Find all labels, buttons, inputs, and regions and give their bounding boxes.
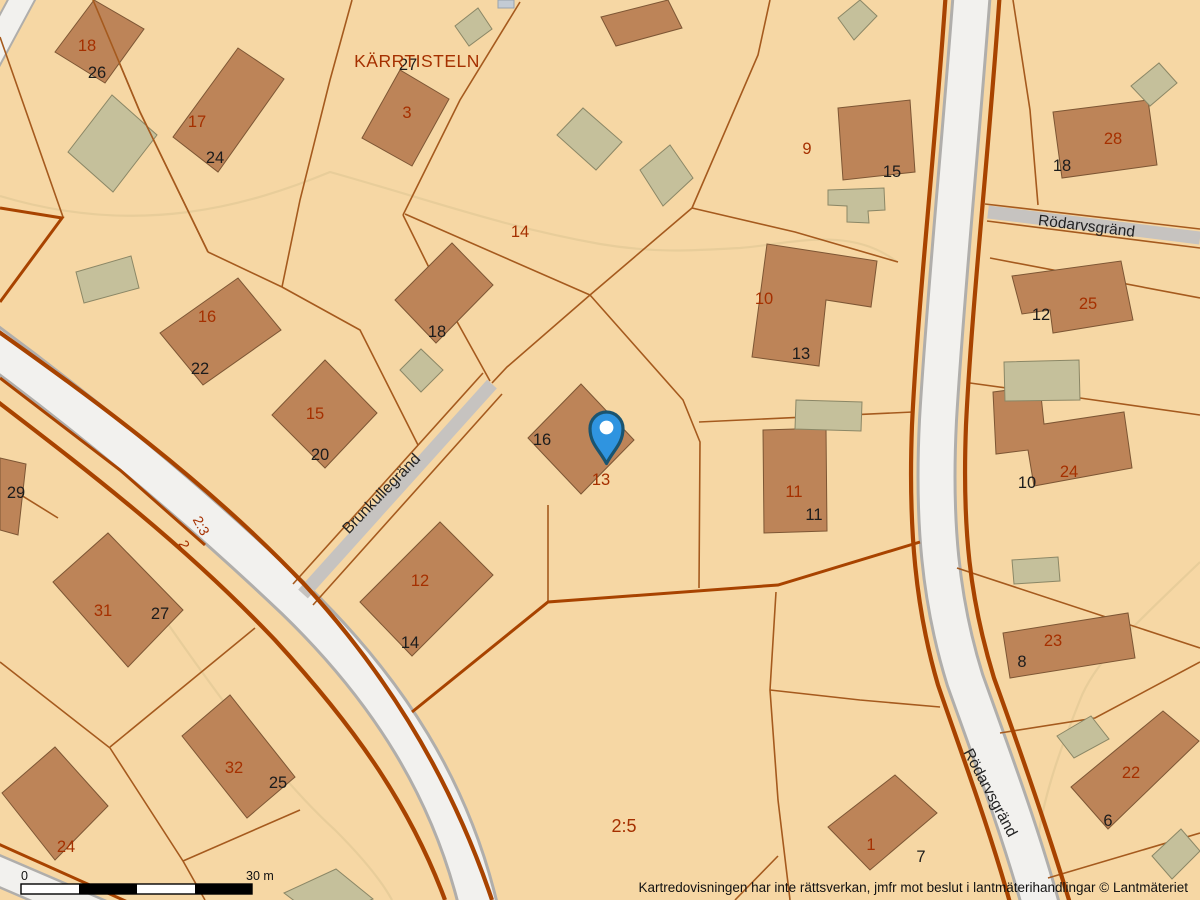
scale-start-label: 0 [21,869,28,883]
parcel-number-label: 9 [802,140,811,158]
copyright-text: Kartredovisningen har inte rättsverkan, … [639,880,1189,895]
parcel-number-label: 31 [94,602,112,620]
scale-bar-segment [195,884,252,894]
address-number-label: 18 [1053,157,1071,175]
scale-end-label: 30 m [246,869,274,883]
address-number-label: 24 [206,149,224,167]
address-number-label: 18 [428,323,446,341]
parcel-number-label: 15 [306,405,324,423]
parcel-number-label: 13 [592,471,610,489]
address-number-label: 11 [805,506,822,524]
address-number-label: 10 [1018,474,1036,492]
address-number-label: 8 [1017,653,1026,671]
shed-footprint [795,400,862,431]
address-number-label: 26 [88,64,106,82]
parcel-number-label: 23 [1044,632,1062,650]
address-number-label: 12 [1032,306,1050,324]
parcel-number-label: 22 [1122,764,1140,782]
pin-center-dot [600,421,614,435]
address-number-label: 7 [916,848,925,866]
parcel-number-label: 12 [411,572,429,590]
parcel-number-label: 1 [866,836,875,854]
parcel-number-label: 3 [402,104,411,122]
address-number-label: 22 [191,360,209,378]
parcel-number-label: 10 [755,290,773,308]
parcel-number-label: 18 [78,37,96,55]
parcel-number-label: 2:5 [611,816,636,836]
address-number-label: 20 [311,446,329,464]
address-number-label: 16 [533,431,551,449]
address-number-label: 14 [401,634,419,652]
scale-bar-segment [137,884,195,894]
parcel-number-label: 14 [511,223,529,241]
shed-footprint [1004,360,1080,401]
address-number-label: 29 [7,484,25,502]
parcel-number-label: 17 [188,113,206,131]
scale-bar-segment [21,884,79,894]
parcel-number-label: 16 [198,308,216,326]
parcel-number-label: 24 [1060,463,1078,481]
area-name-label: KÄRRTISTELN [354,51,480,71]
scale-bar-segment [79,884,137,894]
parcel-number-label: 32 [225,759,243,777]
parcel-number-label: 25 [1079,295,1097,313]
address-number-label: 25 [269,774,287,792]
building-footprint [838,100,915,180]
parcel-number-label: 28 [1104,130,1122,148]
address-number-label: 13 [792,345,810,363]
map-canvas[interactable]: BrunkullegrändRödarvsgrändRödarvsgränd 1… [0,0,1200,900]
address-number-label: 6 [1103,812,1112,830]
address-number-label: 15 [883,163,901,181]
address-number-label: 27 [151,605,169,623]
shed-footprint [498,0,514,8]
shed-footprint [1012,557,1060,584]
parcel-number-label: 24 [57,838,75,856]
parcel-number-label: 11 [785,483,802,501]
